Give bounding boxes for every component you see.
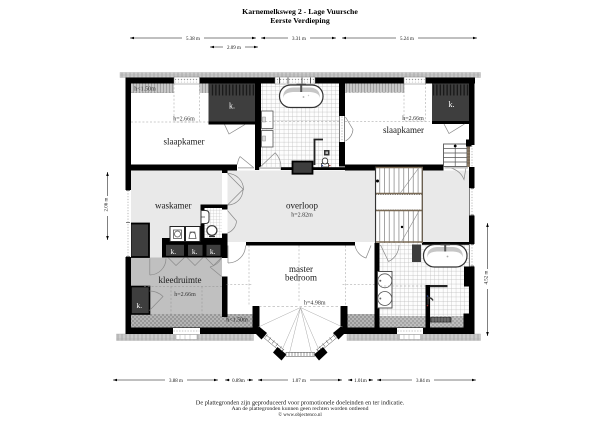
svg-text:bedroom: bedroom [285,273,317,283]
svg-text:3.31 m: 3.31 m [292,37,306,42]
svg-text:1.07 m: 1.07 m [292,379,306,384]
svg-text:h=2.66m: h=2.66m [173,117,195,123]
svg-text:5.24 m: 5.24 m [400,37,414,42]
svg-text:h=2.66m: h=2.66m [174,292,196,298]
svg-text:Aan de plattegronden kunnen ge: Aan de plattegronden kunnen geen rechten… [232,406,369,412]
svg-text:1.01m: 1.01m [354,379,367,384]
svg-text:h=4.98m: h=4.98m [304,301,326,307]
svg-text:h<1.50m: h<1.50m [226,318,248,324]
svg-text:3.88 m: 3.88 m [169,379,183,384]
svg-text:0.89m: 0.89m [232,379,245,384]
svg-text:k.: k. [137,301,143,310]
svg-text:Eerste Verdieping: Eerste Verdieping [270,16,330,25]
svg-text:k.: k. [170,247,176,256]
svg-text:5.38 m: 5.38 m [186,37,200,42]
svg-text:3.84 m: 3.84 m [416,379,430,384]
svg-text:waskamer: waskamer [155,200,191,210]
svg-text:k.: k. [192,247,198,256]
svg-text:slaapkamer: slaapkamer [383,125,424,135]
svg-text:Karnemelksweg 2 - Lage Vuursch: Karnemelksweg 2 - Lage Vuursche [242,7,358,16]
svg-text:k.: k. [210,247,216,256]
svg-text:slaapkamer: slaapkamer [164,137,205,147]
svg-text:© www.objectenco.nl: © www.objectenco.nl [278,412,322,418]
svg-text:kleedruimte: kleedruimte [159,275,202,285]
svg-text:4.52 m: 4.52 m [485,270,490,284]
svg-text:h<1.50m: h<1.50m [134,87,156,93]
svg-text:overloop: overloop [286,201,318,211]
svg-text:k.: k. [229,102,235,111]
svg-text:h=2.66m: h=2.66m [402,116,424,122]
svg-text:2.06 m: 2.06 m [105,197,110,211]
svg-text:k.: k. [449,100,455,109]
svg-text:h=2.82m: h=2.82m [291,213,313,219]
svg-text:2.09 m: 2.09 m [227,46,241,51]
